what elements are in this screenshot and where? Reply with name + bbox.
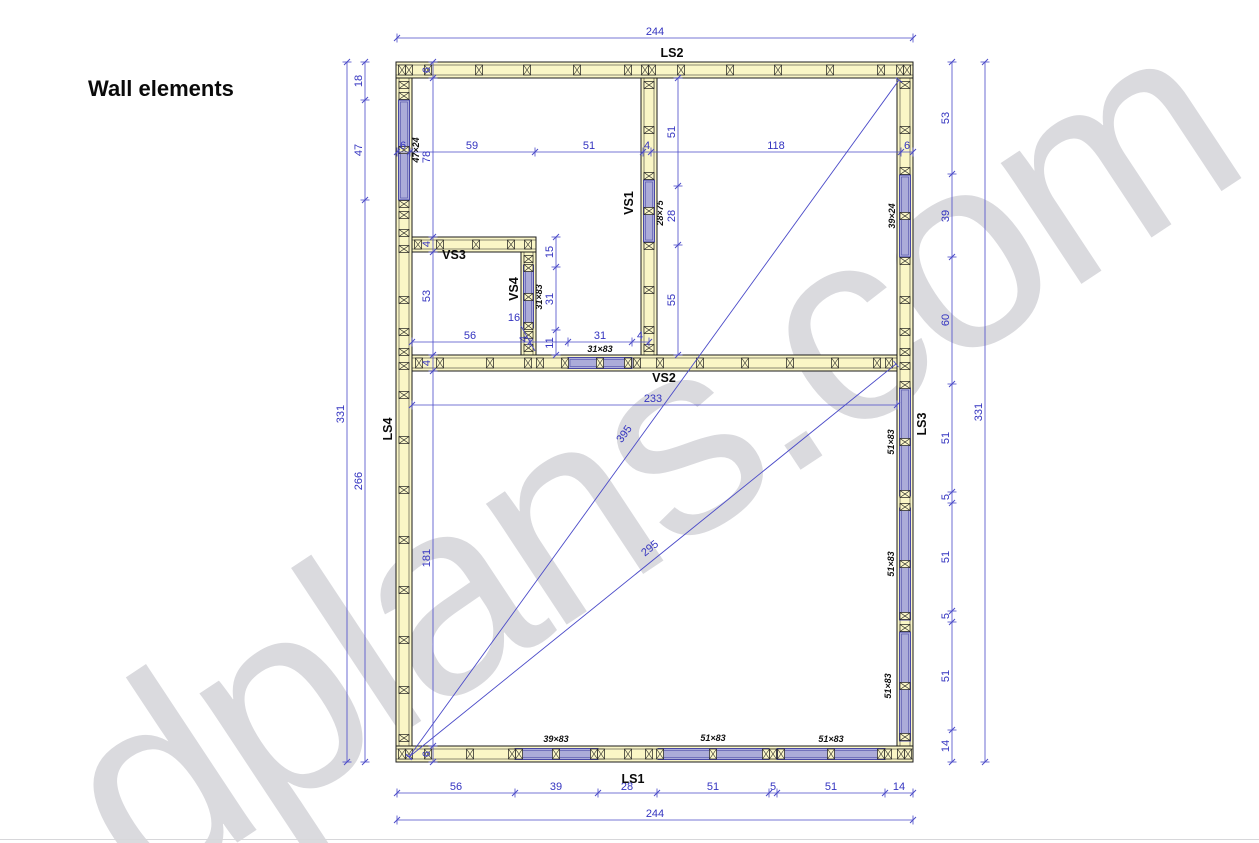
dim-label: 51 — [940, 670, 952, 682]
floor-plan: 2446595141186564314233563928515511424433… — [0, 0, 1259, 843]
dim-label: 55 — [666, 294, 678, 306]
dim-label: 56 — [450, 781, 462, 793]
dim-label: 233 — [644, 393, 662, 405]
dim-label: 266 — [353, 472, 365, 490]
dim-label: 5 — [940, 613, 952, 619]
wall-label-VS2: VS2 — [652, 371, 676, 385]
wall-label-VS4: VS4 — [507, 277, 521, 301]
dim-label: 4 — [421, 241, 433, 247]
dim-label: 14 — [893, 781, 905, 793]
dim-label: 51 — [940, 432, 952, 444]
dim-label: 47 — [353, 144, 365, 156]
dim-label: 4 — [637, 330, 643, 342]
dim-label: 6 — [904, 140, 910, 152]
dim-label: 53 — [940, 112, 952, 124]
wall-label-LS2: LS2 — [661, 46, 684, 60]
dim-label: 78 — [421, 151, 433, 163]
dim-label: 11 — [544, 337, 556, 348]
diagonal-dim-line — [409, 364, 896, 757]
panel-size-label: 51×83 — [886, 429, 896, 454]
dim-label: 31 — [594, 330, 606, 342]
dim-label: 118 — [767, 140, 785, 152]
panel-size-label: 39×24 — [887, 203, 897, 228]
dim-label: 15 — [544, 246, 556, 258]
wall-label-VS3: VS3 — [442, 248, 466, 262]
wall-VS2 — [412, 355, 897, 371]
dim-label: 4 — [644, 140, 650, 152]
dim-label: 51 — [707, 781, 719, 793]
panel-size-label: 51×83 — [818, 734, 843, 744]
diagonal-dim-label: 395 — [614, 423, 634, 445]
dim-label: 53 — [421, 290, 433, 302]
dim-label: 39 — [550, 781, 562, 793]
panel-size-label: 51×83 — [883, 673, 893, 698]
panel-size-label: 51×83 — [700, 733, 725, 743]
panel-size-label: 31×83 — [534, 284, 544, 309]
dim-label: 244 — [646, 808, 664, 820]
page: dplans.com Wall elements 244659514118656… — [0, 0, 1259, 843]
leader-label: 16 — [508, 312, 520, 324]
panel-size-label: 47×24 — [411, 137, 421, 163]
dim-label: 6 — [400, 140, 406, 152]
dim-label: 18 — [353, 75, 365, 87]
dim-label: 51 — [583, 140, 595, 152]
wall-label-LS4: LS4 — [381, 417, 395, 440]
dim-label: 181 — [421, 549, 433, 567]
panel-size-label: 51×83 — [886, 551, 896, 576]
footer-divider — [0, 839, 1259, 840]
dim-label: 60 — [940, 314, 952, 326]
wall-label-LS3: LS3 — [915, 412, 929, 435]
dim-label: 39 — [940, 210, 952, 222]
dim-label: 28 — [666, 210, 678, 222]
panel-size-label: 28×75 — [655, 199, 665, 226]
dim-label: 4 — [421, 360, 433, 366]
dim-label: 14 — [940, 740, 952, 752]
panel-size-label: 39×83 — [543, 734, 568, 744]
dim-label: 5 — [940, 494, 952, 500]
dim-label: 6 — [421, 751, 433, 757]
dim-label: 244 — [646, 26, 664, 38]
wall-label-VS1: VS1 — [622, 191, 636, 215]
dim-label: 51 — [940, 551, 952, 563]
dim-label: 5 — [770, 781, 776, 793]
dim-label: 331 — [973, 403, 985, 421]
dim-label: 51 — [825, 781, 837, 793]
dim-label: 6 — [421, 67, 433, 73]
dim-label: 31 — [544, 293, 556, 305]
wall-label-LS1: LS1 — [622, 772, 645, 786]
dim-label: 331 — [335, 405, 347, 423]
panel-size-label: 31×83 — [587, 344, 612, 354]
dim-label: 51 — [666, 126, 678, 138]
dim-label: 56 — [464, 330, 476, 342]
dim-label: 59 — [466, 140, 478, 152]
